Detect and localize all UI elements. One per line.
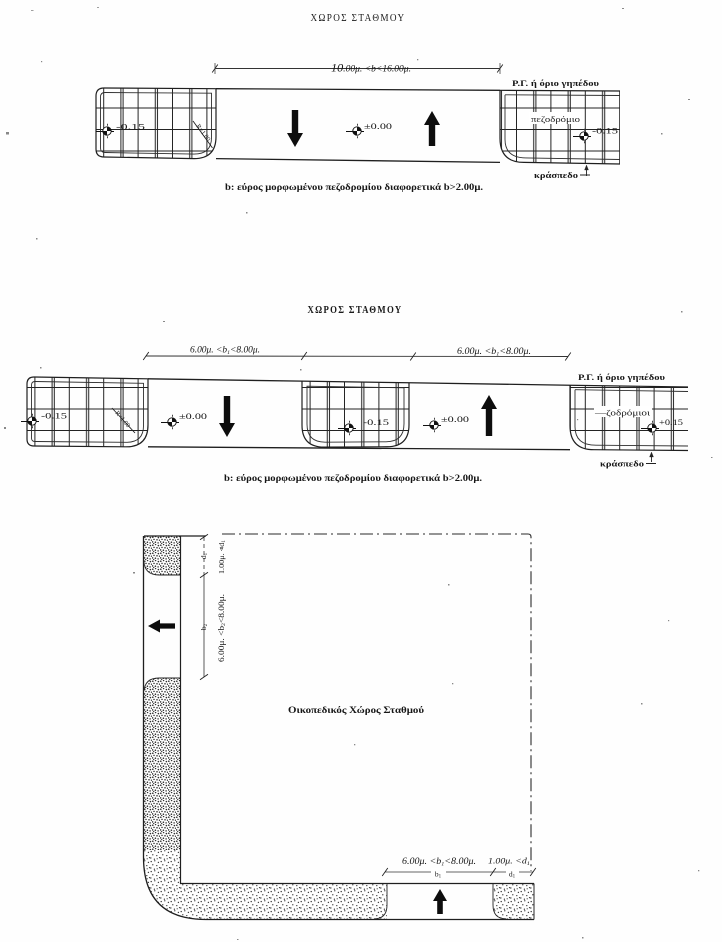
svg-text:πεζοδρόμιο: πεζοδρόμιο xyxy=(531,114,580,124)
svg-text:6.00μ. <b1<8.00μ.: 6.00μ. <b1<8.00μ. xyxy=(402,856,476,868)
svg-text:10.00μ. <b<16.00μ.: 10.00μ. <b<16.00μ. xyxy=(331,63,411,75)
svg-text:Ρ.Γ. ή όριο γηπέδου: Ρ.Γ. ή όριο γηπέδου xyxy=(512,78,600,88)
svg-text:±0.00: ±0.00 xyxy=(364,122,392,131)
svg-text:Ρ.Γ. ή όριο γηπέδου: Ρ.Γ. ή όριο γηπέδου xyxy=(578,372,666,382)
svg-text:±0.00: ±0.00 xyxy=(441,415,469,424)
svg-text:κράσπεδο: κράσπεδο xyxy=(534,170,578,180)
svg-text:6.00μ. <b1<8.00μ.: 6.00μ. <b1<8.00μ. xyxy=(190,345,260,357)
svg-text:±0.00: ±0.00 xyxy=(179,412,207,421)
svg-text:1.00μ. <d1: 1.00μ. <d1 xyxy=(217,539,227,574)
svg-text:-0.15: -0.15 xyxy=(116,123,145,132)
svg-text:1.00μ. <d1: 1.00μ. <d1 xyxy=(488,856,530,868)
svg-text:+0.15: +0.15 xyxy=(659,418,683,427)
svg-text:6.00μ. <b2<8.00μ.: 6.00μ. <b2<8.00μ. xyxy=(217,594,227,662)
svg-text:ΧΩΡΟΣ ΣΤΑΘΜΟΥ: ΧΩΡΟΣ ΣΤΑΘΜΟΥ xyxy=(308,305,403,316)
svg-text:6.00μ. <b1<8.00μ.: 6.00μ. <b1<8.00μ. xyxy=(457,346,531,358)
svg-text:-0.15: -0.15 xyxy=(363,418,389,427)
svg-text:ΧΩΡΟΣ ΣΤΑΘΜΟΥ: ΧΩΡΟΣ ΣΤΑΘΜΟΥ xyxy=(311,13,406,24)
svg-text:-0.15: -0.15 xyxy=(592,127,618,136)
svg-text:-0.15: -0.15 xyxy=(41,412,67,421)
svg-text:κράσπεδο: κράσπεδο xyxy=(600,459,644,469)
svg-text:Οικοπεδικός Χώρος Σταθμού: Οικοπεδικός Χώρος Σταθμού xyxy=(288,705,424,716)
svg-text:—ζοδρόμιοι: —ζοδρόμιοι xyxy=(594,408,651,418)
svg-text:b: εύρος μορφωμένου πεζοδρομίο: b: εύρος μορφωμένου πεζοδρομίου διαφορετ… xyxy=(224,473,482,483)
svg-text:b: εύρος μορφωμένου πεζοδρομίο: b: εύρος μορφωμένου πεζοδρομίου διαφορετ… xyxy=(225,182,483,192)
